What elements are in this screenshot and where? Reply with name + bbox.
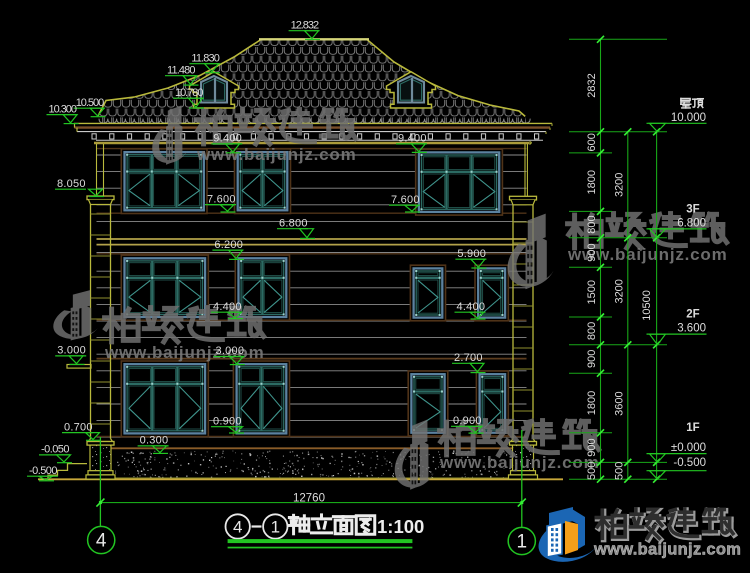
svg-text:2832: 2832 [586,73,598,97]
svg-text:6.200: 6.200 [214,239,243,251]
svg-text:2F: 2F [686,309,699,321]
svg-text:600: 600 [586,133,598,151]
svg-text:3F: 3F [686,203,699,215]
svg-text:9.400: 9.400 [213,133,242,145]
svg-text:2.700: 2.700 [454,352,483,364]
svg-text:900: 900 [586,438,598,456]
svg-text:6.800: 6.800 [279,217,308,229]
svg-text:4: 4 [233,518,242,537]
svg-text:1: 1 [271,518,280,537]
svg-text:10.500: 10.500 [76,97,105,109]
svg-text:900: 900 [586,350,598,368]
svg-text:3.000: 3.000 [216,345,245,357]
svg-text:7.600: 7.600 [207,193,236,205]
svg-text:8.050: 8.050 [57,178,86,190]
svg-text:10.780: 10.780 [175,87,204,99]
svg-text:800: 800 [586,322,598,340]
svg-text:1500: 1500 [586,280,598,304]
svg-text:-0.500: -0.500 [29,465,58,477]
svg-text:10500: 10500 [641,290,653,321]
svg-text:10.300: 10.300 [49,103,78,115]
svg-text:7.600: 7.600 [391,194,420,206]
svg-text:1800: 1800 [586,391,598,415]
svg-text:3.600: 3.600 [677,323,706,335]
svg-text:0.700: 0.700 [64,421,93,433]
svg-text:4.400: 4.400 [213,301,242,313]
svg-text:5.900: 5.900 [457,248,486,260]
svg-text:12.832: 12.832 [291,19,320,31]
svg-text:3.000: 3.000 [57,345,85,357]
svg-text:±0.000: ±0.000 [671,442,706,454]
svg-text:11.480: 11.480 [167,64,196,76]
svg-text:900: 900 [586,243,598,261]
svg-text:3200: 3200 [613,173,625,197]
svg-text:1:100: 1:100 [377,516,424,537]
svg-text:4: 4 [96,531,107,552]
svg-text:3600: 3600 [613,391,625,415]
svg-text:www.baijunjz.com: www.baijunjz.com [196,145,357,164]
svg-text:9.400: 9.400 [398,133,427,145]
svg-text:0.900: 0.900 [453,415,482,427]
svg-text:500: 500 [586,462,598,480]
svg-text:0.300: 0.300 [140,435,169,447]
svg-text:4.400: 4.400 [457,301,486,313]
svg-text:-0.500: -0.500 [673,457,706,469]
svg-text:6.800: 6.800 [677,217,706,229]
svg-text:11.830: 11.830 [191,52,220,64]
svg-text:1800: 1800 [586,170,598,194]
svg-text:500: 500 [613,462,625,480]
svg-text:12760: 12760 [293,493,325,505]
svg-text:1F: 1F [686,422,699,434]
svg-text:3200: 3200 [613,279,625,303]
svg-text:800: 800 [586,215,598,233]
svg-text:10.000: 10.000 [671,112,706,124]
svg-text:1: 1 [517,532,528,553]
svg-text:www.baijunjz.com: www.baijunjz.com [593,541,741,559]
svg-text:0.900: 0.900 [213,415,242,427]
svg-text:-0.050: -0.050 [41,444,70,456]
